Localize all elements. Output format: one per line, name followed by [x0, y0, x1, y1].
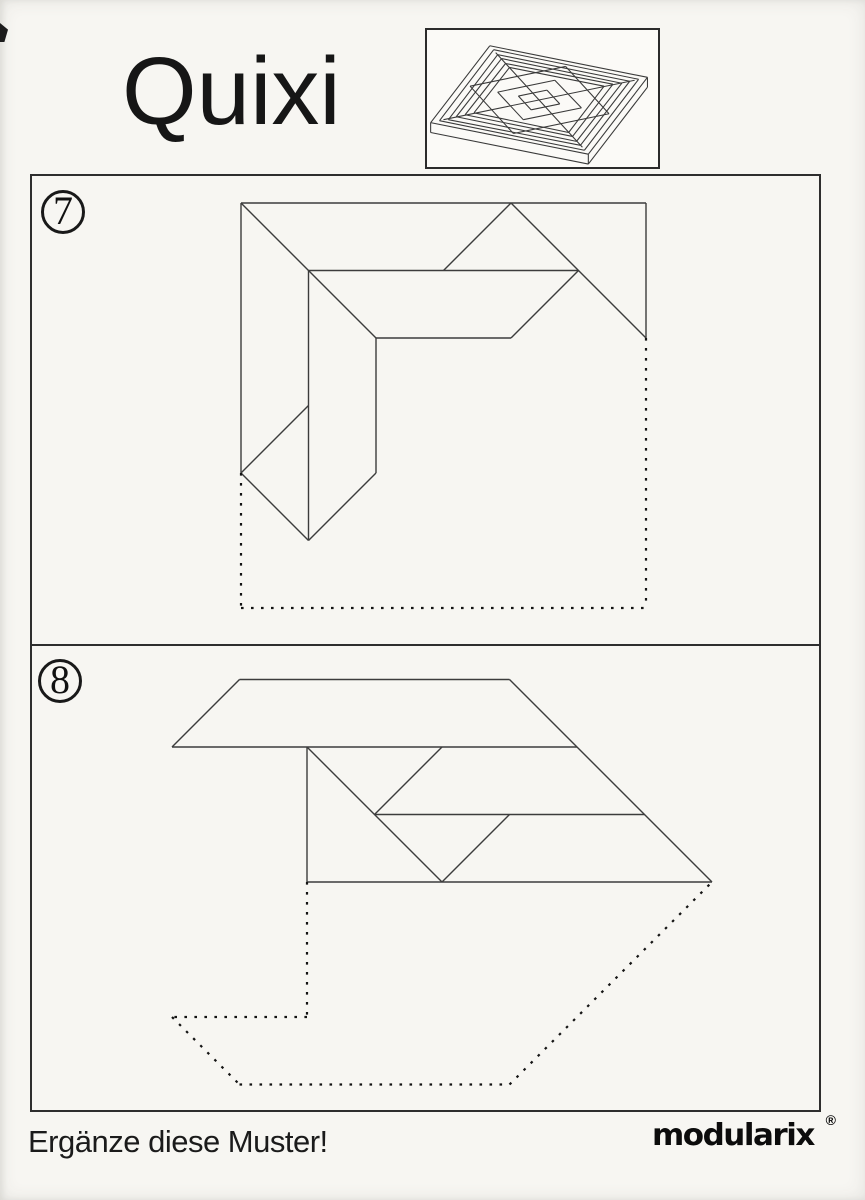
puzzle-line — [566, 66, 609, 113]
brand-logo: modularix ® — [652, 1120, 832, 1160]
page-title: Quixi — [122, 44, 341, 140]
puzzle-line — [584, 79, 638, 150]
puzzle-line — [440, 50, 494, 121]
panel-7-number-badge: 7 — [41, 190, 85, 234]
puzzle-line — [456, 59, 501, 117]
scan-artifact — [0, 23, 8, 42]
registered-trademark-icon: ® — [826, 1112, 836, 1128]
puzzle-panels-box: 7 8 — [30, 174, 821, 1112]
puzzle-line — [531, 104, 560, 110]
puzzle-line — [518, 90, 547, 96]
panel-8-number: 8 — [50, 656, 70, 703]
puzzle-line — [431, 133, 589, 165]
puzzle-line — [474, 67, 509, 112]
board-isometric-drawing — [427, 30, 658, 167]
panel-7-number: 7 — [53, 187, 73, 234]
instruction-text: Ergänze diese Muster! — [28, 1124, 328, 1160]
puzzle-line — [547, 90, 560, 104]
puzzle-board-illustration — [425, 28, 660, 169]
puzzle-line — [588, 87, 647, 164]
panel-divider — [32, 644, 819, 646]
puzzle-line — [518, 96, 531, 110]
panel-8-number-badge: 8 — [38, 659, 82, 703]
puzzle-line — [498, 55, 630, 82]
brand-name: modularix — [652, 1120, 814, 1150]
